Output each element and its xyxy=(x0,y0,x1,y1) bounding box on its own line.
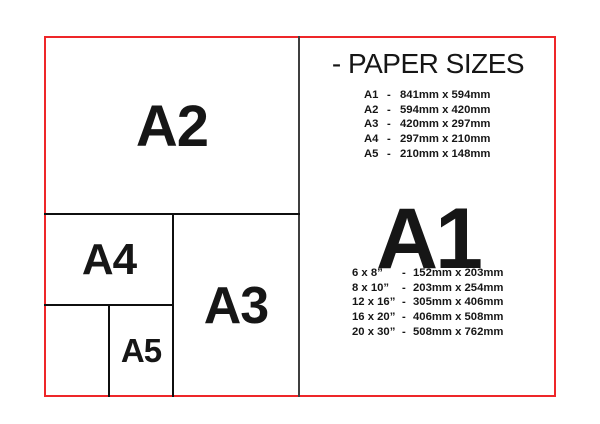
size-name: A4 xyxy=(364,132,387,147)
list-item: 8 x 10” - 203mm x 254mm xyxy=(352,281,600,296)
a3-box: A3 xyxy=(174,216,298,396)
size-dash: - xyxy=(402,266,413,281)
a4-label: A4 xyxy=(82,235,136,285)
leftover-box xyxy=(46,306,108,396)
size-dash: - xyxy=(387,147,400,162)
size-dims: 210mm x 148mm xyxy=(400,147,490,162)
size-dims: 305mm x 406mm xyxy=(413,295,503,310)
a4-box: A4 xyxy=(46,216,172,304)
a5-box: A5 xyxy=(110,306,172,396)
list-item: 6 x 8” - 152mm x 203mm xyxy=(352,266,600,281)
size-name: A5 xyxy=(364,147,387,162)
list-item: A3 - 420mm x 297mm xyxy=(364,117,600,132)
size-name: 8 x 10” xyxy=(352,281,402,296)
paper-sizes-poster: A2 A4 A3 A5 - PAPER SIZES A1 - 841mm x 5… xyxy=(0,0,600,424)
size-dims: 297mm x 210mm xyxy=(400,132,490,147)
a2-label: A2 xyxy=(136,93,208,160)
list-item: 12 x 16” - 305mm x 406mm xyxy=(352,295,600,310)
info-panel: - PAPER SIZES A1 - 841mm x 594mm A2 - 59… xyxy=(300,36,556,397)
size-name: 20 x 30” xyxy=(352,325,402,340)
size-name: 16 x 20” xyxy=(352,310,402,325)
a2-box: A2 xyxy=(46,40,298,212)
size-dims: 203mm x 254mm xyxy=(413,281,503,296)
size-dash: - xyxy=(387,103,400,118)
a5-label: A5 xyxy=(121,332,161,370)
a-size-list: A1 - 841mm x 594mm A2 - 594mm x 420mm A3… xyxy=(300,88,600,161)
size-dims: 841mm x 594mm xyxy=(400,88,490,103)
size-dash: - xyxy=(387,117,400,132)
size-dims: 594mm x 420mm xyxy=(400,103,490,118)
size-dash: - xyxy=(402,325,413,340)
size-dash: - xyxy=(402,295,413,310)
list-item: 16 x 20” - 406mm x 508mm xyxy=(352,310,600,325)
size-dims: 406mm x 508mm xyxy=(413,310,503,325)
size-dash: - xyxy=(387,88,400,103)
page-title: - PAPER SIZES xyxy=(300,48,556,80)
list-item: A4 - 297mm x 210mm xyxy=(364,132,600,147)
list-item: A1 - 841mm x 594mm xyxy=(364,88,600,103)
list-item: A2 - 594mm x 420mm xyxy=(364,103,600,118)
a3-label: A3 xyxy=(204,276,268,336)
size-dims: 508mm x 762mm xyxy=(413,325,503,340)
list-item: A5 - 210mm x 148mm xyxy=(364,147,600,162)
size-name: 6 x 8” xyxy=(352,266,402,281)
size-name: A3 xyxy=(364,117,387,132)
size-dims: 420mm x 297mm xyxy=(400,117,490,132)
size-dash: - xyxy=(402,310,413,325)
inch-size-list: 6 x 8” - 152mm x 203mm 8 x 10” - 203mm x… xyxy=(300,266,600,339)
list-item: 20 x 30” - 508mm x 762mm xyxy=(352,325,600,340)
size-name: A2 xyxy=(364,103,387,118)
size-dash: - xyxy=(387,132,400,147)
size-name: 12 x 16” xyxy=(352,295,402,310)
size-dims: 152mm x 203mm xyxy=(413,266,503,281)
size-dash: - xyxy=(402,281,413,296)
size-name: A1 xyxy=(364,88,387,103)
